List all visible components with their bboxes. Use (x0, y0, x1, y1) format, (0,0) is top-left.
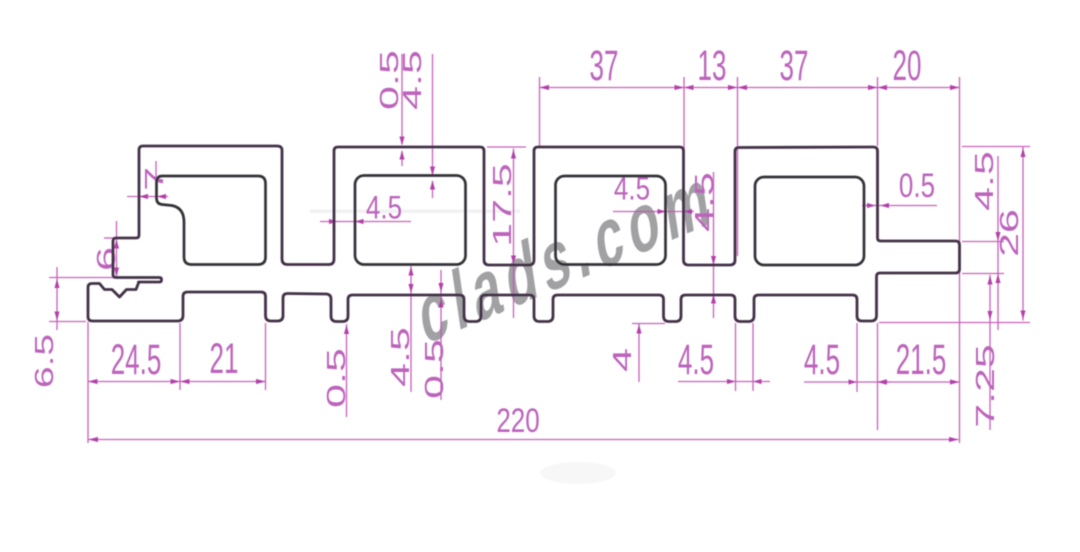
svg-text:6: 6 (92, 247, 121, 271)
svg-text:0.5: 0.5 (322, 348, 351, 408)
svg-text:4: 4 (608, 348, 637, 372)
svg-text:21.5: 21.5 (896, 335, 947, 383)
svg-text:6.5: 6.5 (30, 334, 59, 388)
svg-text:24.5: 24.5 (111, 335, 162, 383)
svg-text:4.5: 4.5 (366, 190, 402, 226)
svg-text:13: 13 (698, 41, 727, 89)
svg-text:220: 220 (496, 403, 539, 440)
svg-text:4.5: 4.5 (690, 172, 719, 232)
svg-text:0.5: 0.5 (420, 339, 449, 399)
svg-text:4.5: 4.5 (386, 327, 415, 387)
svg-text:7.25: 7.25 (971, 344, 1000, 428)
svg-text:21: 21 (210, 334, 239, 382)
svg-text:17.5: 17.5 (488, 163, 517, 247)
svg-text:4.5: 4.5 (970, 151, 999, 211)
svg-text:4.5: 4.5 (398, 50, 427, 110)
svg-text:7: 7 (140, 167, 169, 191)
svg-text:4.5: 4.5 (678, 335, 714, 383)
svg-text:clads.com: clads.com (413, 146, 721, 363)
svg-text:37: 37 (780, 41, 809, 89)
svg-text:20: 20 (893, 41, 922, 89)
svg-text:37: 37 (590, 41, 619, 89)
svg-text:0.5: 0.5 (899, 168, 935, 205)
svg-text:26: 26 (995, 209, 1024, 257)
svg-text:4.5: 4.5 (804, 335, 840, 383)
